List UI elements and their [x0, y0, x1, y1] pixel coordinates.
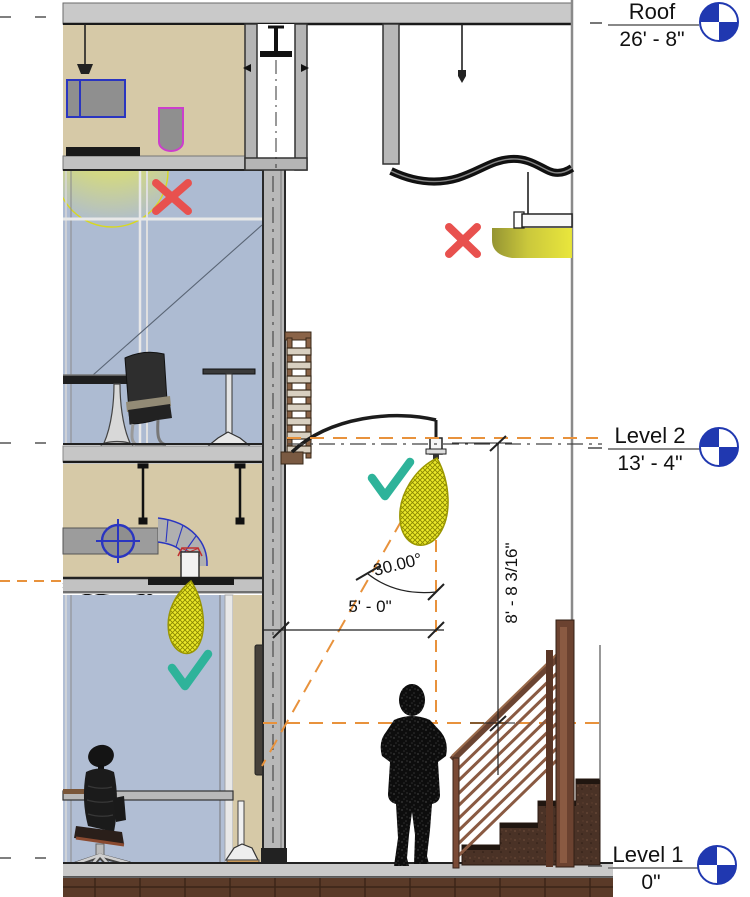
ceiling-light-fixture[interactable] — [66, 147, 140, 156]
column[interactable] — [383, 24, 399, 164]
level-elevation[interactable]: 13' - 4" — [617, 452, 682, 475]
level-line-stubs — [0, 17, 60, 858]
level-name[interactable]: Roof — [629, 0, 676, 24]
dimension-horizontal[interactable]: 5' - 0" — [263, 597, 444, 638]
level-name[interactable]: Level 1 — [613, 842, 684, 867]
level-marker-roof[interactable]: Roof 26' - 8" — [590, 0, 738, 51]
level-name[interactable]: Level 2 — [615, 423, 686, 448]
dimension-text-angle[interactable]: 30.00° — [371, 549, 423, 579]
level-head-icon[interactable] — [698, 846, 736, 884]
dimension-text-horizontal[interactable]: 5' - 0" — [348, 597, 391, 616]
downlight-diffuser[interactable] — [181, 552, 199, 578]
building-section-view: 8' - 8 3/16" 5' - 0" 30.00° Roof 26' - 8… — [0, 0, 750, 897]
upper-ceiling[interactable] — [63, 156, 263, 170]
dimension-text-vertical[interactable]: 8' - 8 3/16" — [502, 542, 521, 623]
sprinkler-pendant[interactable] — [458, 24, 466, 83]
curved-ceiling-band[interactable] — [391, 159, 572, 182]
level-elevation[interactable]: 26' - 8" — [619, 28, 684, 51]
hanging-shaft[interactable] — [243, 24, 309, 170]
central-wall[interactable] — [261, 170, 287, 868]
level-head-icon[interactable] — [700, 3, 738, 41]
roof-slab[interactable] — [63, 3, 572, 24]
level-elevation[interactable]: 0" — [641, 871, 660, 894]
mechanical-box[interactable] — [67, 80, 80, 117]
mechanical-unit[interactable] — [159, 108, 183, 151]
section-drawing: 8' - 8 3/16" 5' - 0" 30.00° Roof 26' - 8… — [0, 0, 750, 897]
suspended-light-fixture[interactable] — [492, 172, 572, 258]
level2-floor-slab[interactable] — [63, 446, 285, 462]
mechanical-box[interactable] — [80, 80, 125, 117]
fixture-light-glow — [492, 228, 572, 258]
dimension-angle[interactable]: 30.00° — [356, 549, 444, 600]
level-head-icon[interactable] — [700, 428, 738, 466]
level-marker-level2[interactable]: Level 2 13' - 4" — [588, 423, 738, 475]
